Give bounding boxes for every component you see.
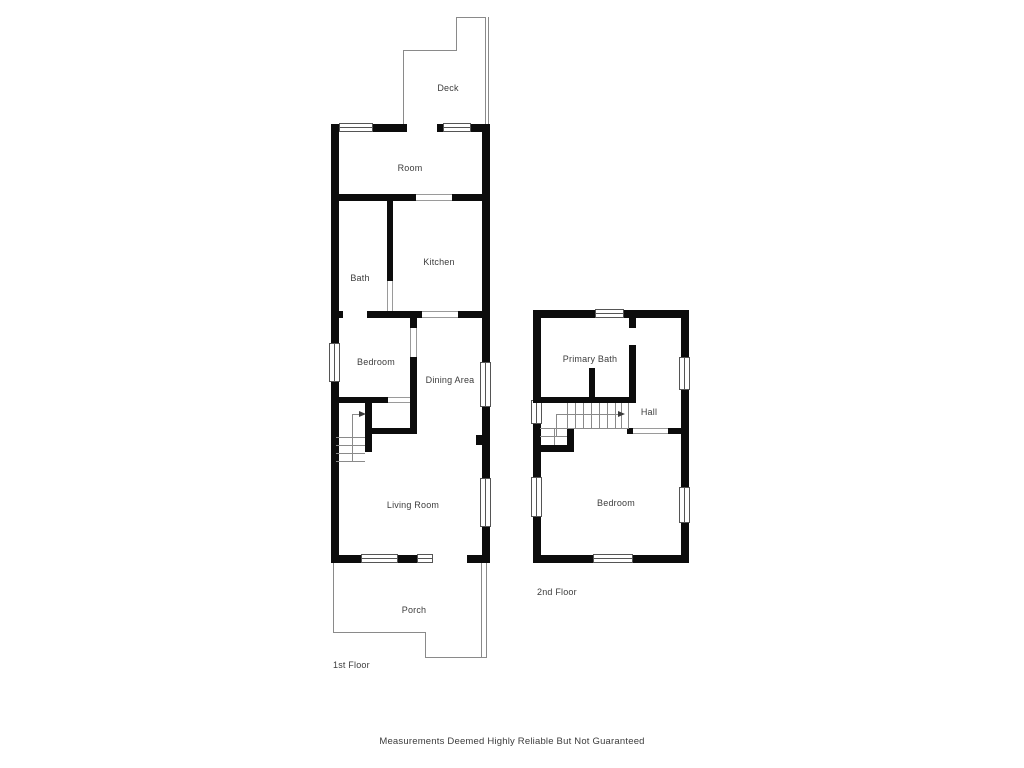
stair-direction-arrow-icon [618, 411, 625, 417]
floorplan-canvas: Deck Room Kitchen Bath Bedroom Dining Ar… [0, 0, 1024, 768]
stair-tread [607, 403, 608, 428]
stair-tread [575, 403, 576, 428]
stairs-wall-horizontal [533, 445, 574, 452]
stair-landing-divider-h [540, 436, 567, 437]
interior-wall-primary-bath-right-lower [629, 345, 636, 400]
exterior-wall-top-seg2 [624, 310, 689, 318]
stair-direction-line [556, 414, 619, 415]
door-opening [633, 428, 668, 434]
stair-tread [591, 403, 592, 428]
stair-tread [628, 403, 629, 428]
stair-tread [599, 403, 600, 428]
stair-tread [567, 403, 568, 428]
window [531, 477, 542, 517]
floor-label-2nd: 2nd Floor [537, 587, 577, 597]
window [531, 400, 542, 424]
exterior-wall-top-seg1 [533, 310, 595, 318]
disclaimer-text: Measurements Deemed Highly Reliable But … [379, 736, 644, 747]
second-floor-plan: Primary Bath Hall Bedroom 2nd Floor [0, 0, 1024, 768]
window [679, 487, 690, 523]
interior-wall-primary-bath-right-upper [629, 318, 636, 328]
room-label-hall: Hall [641, 407, 657, 417]
exterior-wall-right [681, 310, 689, 563]
stair-tread [615, 403, 616, 428]
room-label-primary-bath: Primary Bath [563, 354, 617, 364]
window [593, 554, 633, 563]
room-label-bedroom: Bedroom [597, 498, 635, 508]
stair-direction-line [556, 414, 557, 436]
stair-tread [583, 403, 584, 428]
interior-wall-hall-bedroom-seg2 [668, 428, 681, 434]
interior-wall-primary-bath-stub [589, 368, 595, 400]
window [595, 309, 624, 318]
window [679, 357, 690, 390]
